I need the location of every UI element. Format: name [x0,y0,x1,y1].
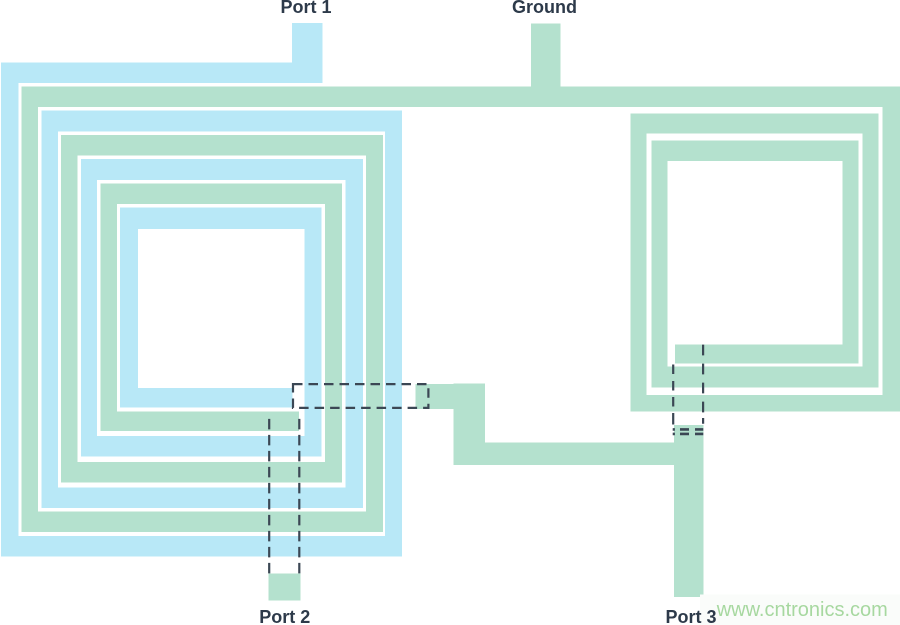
svg-text:Port 2: Port 2 [259,607,310,625]
svg-text:Ground: Ground [512,0,577,17]
svg-text:Port 3: Port 3 [665,607,716,625]
svg-text:www.cntronics.com: www.cntronics.com [716,599,888,621]
svg-text:Port 1: Port 1 [280,0,331,17]
